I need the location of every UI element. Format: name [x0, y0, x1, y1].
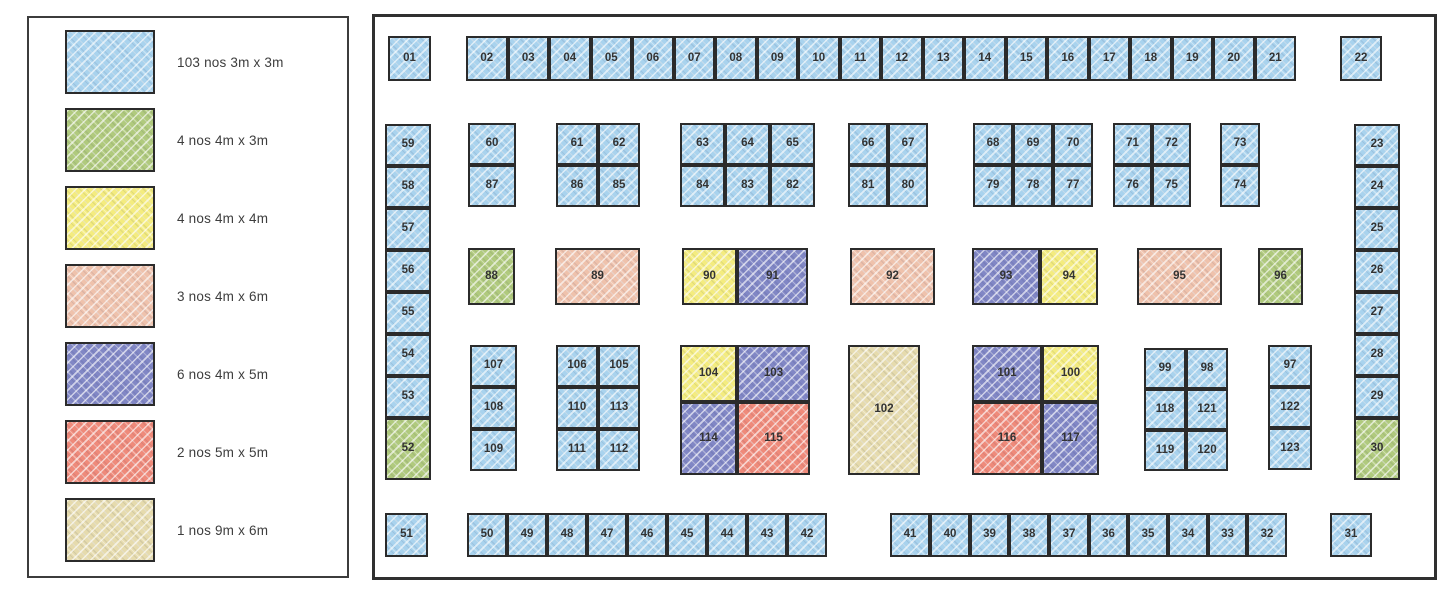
booth-layout-diagram: 103 nos 3m x 3m4 nos 4m x 3m4 nos 4m x 4…: [0, 0, 1443, 597]
booth-103: 103: [737, 345, 810, 402]
booth-92: 92: [850, 248, 935, 305]
booth-77: 77: [1053, 165, 1093, 207]
booth-112: 112: [598, 429, 640, 471]
booth-121: 121: [1186, 389, 1228, 430]
legend-label: 4 nos 4m x 3m: [177, 133, 268, 148]
booth-58: 58: [385, 166, 431, 208]
booth-51: 51: [385, 513, 428, 557]
booth-11: 11: [840, 36, 882, 81]
legend-label: 4 nos 4m x 4m: [177, 211, 268, 226]
booth-123: 123: [1268, 428, 1312, 470]
booth-88: 88: [468, 248, 515, 305]
booth-110: 110: [556, 387, 598, 429]
booth-40: 40: [930, 513, 970, 557]
booth-01: 01: [388, 36, 431, 81]
legend-label: 6 nos 4m x 5m: [177, 367, 268, 382]
booth-42: 42: [787, 513, 827, 557]
booth-79: 79: [973, 165, 1013, 207]
booth-81: 81: [848, 165, 888, 207]
booth-118: 118: [1144, 389, 1186, 430]
booth-86: 86: [556, 165, 598, 207]
booth-113: 113: [598, 387, 640, 429]
legend-item: 4 nos 4m x 4m: [65, 186, 339, 250]
booth-57: 57: [385, 208, 431, 250]
legend-item: 1 nos 9m x 6m: [65, 498, 339, 562]
booth-10: 10: [798, 36, 840, 81]
booth-41: 41: [890, 513, 930, 557]
booth-24: 24: [1354, 166, 1400, 208]
booth-04: 04: [549, 36, 591, 81]
booth-99: 99: [1144, 348, 1186, 389]
legend-swatch-g: [65, 108, 155, 172]
booth-45: 45: [667, 513, 707, 557]
booth-44: 44: [707, 513, 747, 557]
booth-53: 53: [385, 376, 431, 418]
legend-label: 2 nos 5m x 5m: [177, 445, 268, 460]
booth-100: 100: [1042, 345, 1099, 402]
booth-34: 34: [1168, 513, 1208, 557]
legend-panel: 103 nos 3m x 3m4 nos 4m x 3m4 nos 4m x 4…: [27, 16, 349, 578]
booth-108: 108: [470, 387, 517, 429]
booth-36: 36: [1089, 513, 1128, 557]
booth-02: 02: [466, 36, 508, 81]
booth-38: 38: [1009, 513, 1049, 557]
booth-61: 61: [556, 123, 598, 165]
booth-16: 16: [1047, 36, 1089, 81]
booth-21: 21: [1255, 36, 1297, 81]
booth-46: 46: [627, 513, 667, 557]
booth-70: 70: [1053, 123, 1093, 165]
booth-85: 85: [598, 165, 640, 207]
booth-102: 102: [848, 345, 920, 475]
booth-31: 31: [1330, 513, 1372, 557]
booth-82: 82: [770, 165, 815, 207]
booth-09: 09: [757, 36, 799, 81]
booth-32: 32: [1247, 513, 1287, 557]
legend-item: 2 nos 5m x 5m: [65, 420, 339, 484]
booth-29: 29: [1354, 376, 1400, 418]
booth-101: 101: [972, 345, 1042, 402]
booth-59: 59: [385, 124, 431, 166]
booth-37: 37: [1049, 513, 1089, 557]
booth-23: 23: [1354, 124, 1400, 166]
legend-item: 3 nos 4m x 6m: [65, 264, 339, 328]
booth-94: 94: [1040, 248, 1098, 305]
booth-30: 30: [1354, 418, 1400, 480]
booth-15: 15: [1006, 36, 1048, 81]
booth-07: 07: [674, 36, 716, 81]
booth-67: 67: [888, 123, 928, 165]
booth-93: 93: [972, 248, 1040, 305]
booth-74: 74: [1220, 165, 1260, 207]
legend-swatch-s: [65, 264, 155, 328]
booth-64: 64: [725, 123, 770, 165]
booth-52: 52: [385, 418, 431, 480]
booth-22: 22: [1340, 36, 1382, 81]
booth-87: 87: [468, 165, 516, 207]
booth-98: 98: [1186, 348, 1228, 389]
legend-swatch-v: [65, 342, 155, 406]
booth-13: 13: [923, 36, 965, 81]
booth-03: 03: [508, 36, 550, 81]
booth-48: 48: [547, 513, 587, 557]
booth-109: 109: [470, 429, 517, 471]
booth-20: 20: [1213, 36, 1255, 81]
legend-swatch-y: [65, 186, 155, 250]
booth-91: 91: [737, 248, 808, 305]
booth-60: 60: [468, 123, 516, 165]
booth-69: 69: [1013, 123, 1053, 165]
booth-84: 84: [680, 165, 725, 207]
booth-104: 104: [680, 345, 737, 402]
booth-12: 12: [881, 36, 923, 81]
booth-83: 83: [725, 165, 770, 207]
booth-89: 89: [555, 248, 640, 305]
legend-label: 1 nos 9m x 6m: [177, 523, 268, 538]
booth-122: 122: [1268, 387, 1312, 428]
legend-swatch-r: [65, 420, 155, 484]
booth-33: 33: [1208, 513, 1247, 557]
legend-swatch-b: [65, 30, 155, 94]
booth-18: 18: [1130, 36, 1172, 81]
legend-item: 4 nos 4m x 3m: [65, 108, 339, 172]
booth-117: 117: [1042, 402, 1099, 475]
booth-49: 49: [507, 513, 547, 557]
legend-swatch-t: [65, 498, 155, 562]
booth-120: 120: [1186, 430, 1228, 471]
booth-55: 55: [385, 292, 431, 334]
booth-114: 114: [680, 402, 737, 475]
booth-96: 96: [1258, 248, 1303, 305]
booth-05: 05: [591, 36, 633, 81]
booth-26: 26: [1354, 250, 1400, 292]
booth-63: 63: [680, 123, 725, 165]
legend-item: 103 nos 3m x 3m: [65, 30, 339, 94]
booth-14: 14: [964, 36, 1006, 81]
booth-54: 54: [385, 334, 431, 376]
booth-72: 72: [1152, 123, 1191, 165]
booth-107: 107: [470, 345, 517, 387]
booth-27: 27: [1354, 292, 1400, 334]
booth-119: 119: [1144, 430, 1186, 471]
booth-56: 56: [385, 250, 431, 292]
booth-50: 50: [467, 513, 507, 557]
legend-item: 6 nos 4m x 5m: [65, 342, 339, 406]
booth-65: 65: [770, 123, 815, 165]
booth-47: 47: [587, 513, 627, 557]
booth-75: 75: [1152, 165, 1191, 207]
booth-106: 106: [556, 345, 598, 387]
legend-label: 3 nos 4m x 6m: [177, 289, 268, 304]
booth-39: 39: [970, 513, 1009, 557]
booth-95: 95: [1137, 248, 1222, 305]
booth-76: 76: [1113, 165, 1152, 207]
booth-35: 35: [1128, 513, 1168, 557]
booth-43: 43: [747, 513, 787, 557]
booth-68: 68: [973, 123, 1013, 165]
booth-78: 78: [1013, 165, 1053, 207]
booth-105: 105: [598, 345, 640, 387]
booth-80: 80: [888, 165, 928, 207]
booth-97: 97: [1268, 345, 1312, 387]
booth-90: 90: [682, 248, 737, 305]
booth-116: 116: [972, 402, 1042, 475]
booth-25: 25: [1354, 208, 1400, 250]
booth-28: 28: [1354, 334, 1400, 376]
booth-17: 17: [1089, 36, 1131, 81]
booth-08: 08: [715, 36, 757, 81]
booth-111: 111: [556, 429, 598, 471]
booth-115: 115: [737, 402, 810, 475]
booth-06: 06: [632, 36, 674, 81]
legend-label: 103 nos 3m x 3m: [177, 55, 284, 70]
booth-66: 66: [848, 123, 888, 165]
booth-19: 19: [1172, 36, 1214, 81]
booth-62: 62: [598, 123, 640, 165]
booth-71: 71: [1113, 123, 1152, 165]
booth-73: 73: [1220, 123, 1260, 165]
